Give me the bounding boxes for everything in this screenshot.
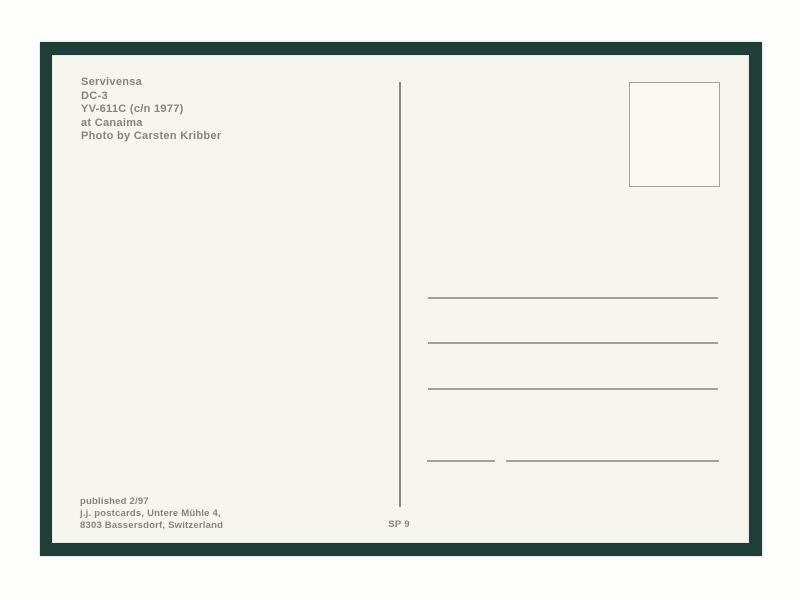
address-line (428, 388, 718, 390)
address-line (428, 342, 718, 344)
publisher-block: published 2/97 j.j. postcards, Untere Mü… (80, 496, 223, 532)
address-line (428, 297, 718, 299)
address-line-segment (506, 460, 719, 462)
caption-line-photo-credit: Photo by Carsten Kribber (81, 130, 221, 144)
center-divider-line (399, 82, 401, 507)
publisher-line-date: published 2/97 (80, 496, 223, 508)
publisher-line-address: 8303 Bassersdorf, Switzerland (80, 520, 223, 532)
postcard-frame: Servivensa DC-3 YV-611C (c/n 1977) at Ca… (40, 42, 762, 556)
caption-line-registration: YV-611C (c/n 1977) (81, 103, 221, 117)
stamp-box (629, 82, 720, 187)
address-line-segment (427, 460, 495, 462)
scanned-postcard-back: Servivensa DC-3 YV-611C (c/n 1977) at Ca… (0, 0, 800, 600)
caption-line-airline: Servivensa (81, 76, 221, 90)
caption-line-aircraft: DC-3 (81, 90, 221, 104)
caption-line-location: at Canaima (81, 117, 221, 131)
series-code: SP 9 (369, 519, 429, 530)
caption-block: Servivensa DC-3 YV-611C (c/n 1977) at Ca… (81, 76, 221, 144)
publisher-line-name: j.j. postcards, Untere Mühle 4, (80, 508, 223, 520)
postcard-card: Servivensa DC-3 YV-611C (c/n 1977) at Ca… (52, 55, 749, 543)
